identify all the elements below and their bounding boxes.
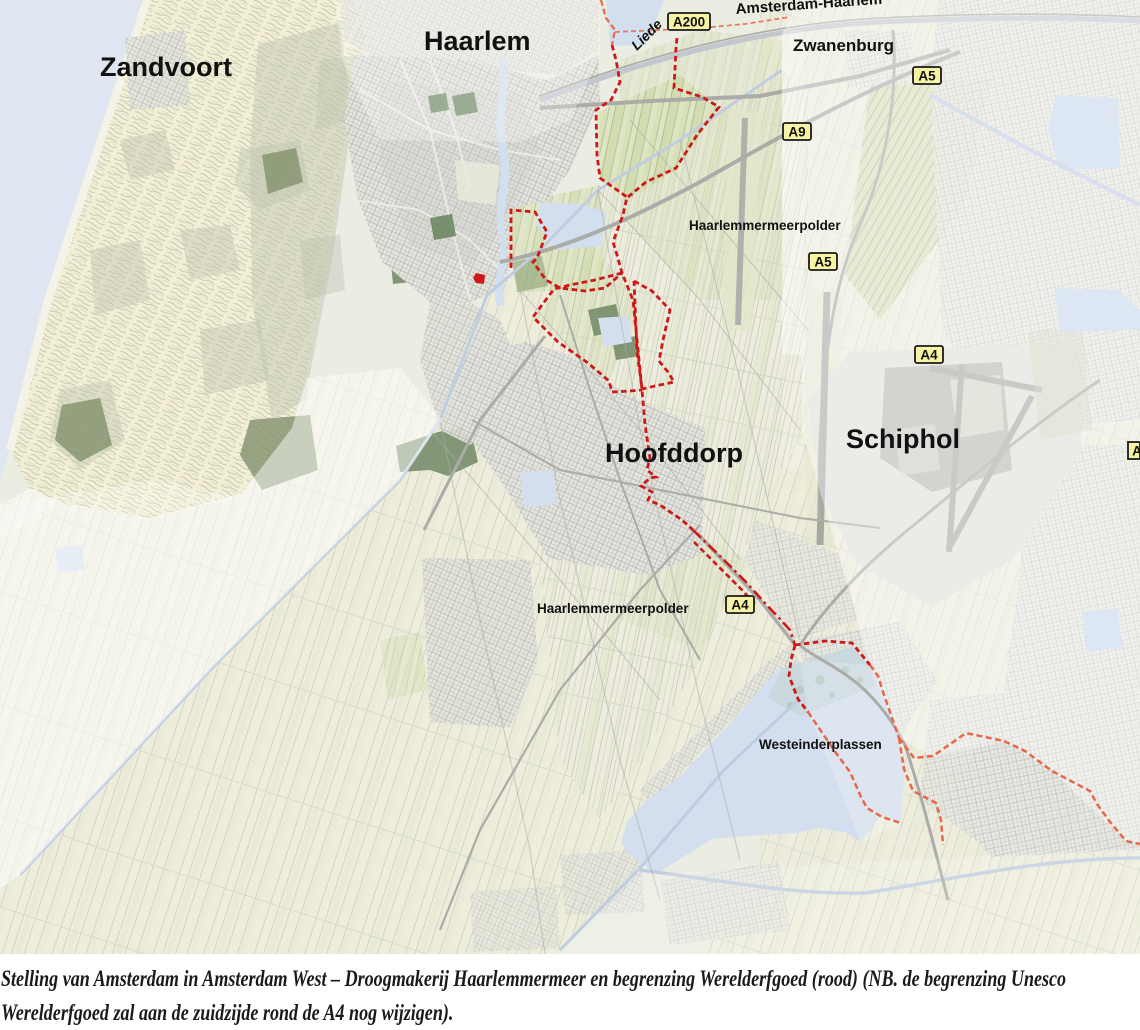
svg-text:A9: A9 (788, 125, 805, 140)
svg-text:Zandvoort: Zandvoort (100, 52, 232, 82)
svg-text:Westeinderplassen: Westeinderplassen (759, 737, 882, 752)
svg-text:Hoofddorp: Hoofddorp (605, 438, 743, 468)
svg-text:Zwanenburg: Zwanenburg (793, 36, 894, 55)
svg-text:Schiphol: Schiphol (846, 424, 960, 454)
svg-text:A5: A5 (814, 255, 832, 270)
svg-text:Haarlem: Haarlem (424, 26, 531, 56)
svg-text:A4: A4 (920, 348, 938, 363)
svg-text:A5: A5 (918, 69, 936, 84)
svg-text:Haarlemmermeerpolder: Haarlemmermeerpolder (537, 601, 689, 616)
svg-text:Haarlemmermeerpolder: Haarlemmermeerpolder (689, 218, 841, 233)
svg-text:A4: A4 (731, 598, 749, 613)
svg-text:A200: A200 (673, 15, 705, 30)
svg-text:A: A (1132, 444, 1140, 459)
